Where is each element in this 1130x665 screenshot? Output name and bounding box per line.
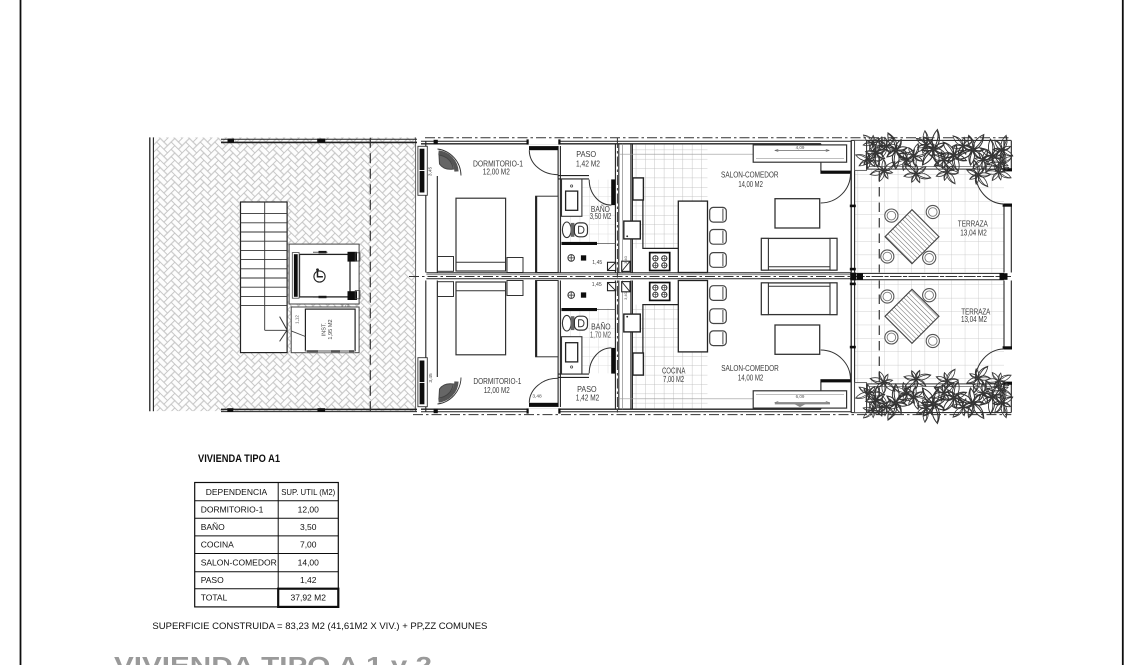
svg-text:1,70 M2: 1,70 M2 [590, 329, 611, 339]
svg-text:PASO: PASO [201, 575, 224, 585]
svg-text:3,48: 3,48 [532, 394, 542, 400]
svg-text:1,45: 1,45 [592, 282, 602, 288]
svg-text:SALON-COMEDOR: SALON-COMEDOR [201, 558, 277, 568]
svg-text:1,42: 1,42 [300, 575, 317, 585]
svg-text:TOTAL: TOTAL [201, 593, 228, 603]
svg-text:6,09: 6,09 [796, 394, 805, 399]
svg-text:14,00 M2: 14,00 M2 [738, 373, 764, 383]
svg-text:13,04 M2: 13,04 M2 [961, 314, 987, 324]
svg-text:SALON-COMEDOR: SALON-COMEDOR [721, 363, 779, 373]
svg-text:1,45: 1,45 [592, 260, 602, 266]
svg-text:VIVIENDA TIPO A 1 y 2: VIVIENDA TIPO A 1 y 2 [114, 653, 432, 665]
svg-text:7,00 M2: 7,00 M2 [663, 374, 684, 384]
svg-text:1,42 M2: 1,42 M2 [576, 159, 600, 169]
svg-text:1,42 M2: 1,42 M2 [576, 393, 600, 403]
svg-text:14,00: 14,00 [298, 558, 320, 568]
svg-text:1,12: 1,12 [295, 315, 300, 324]
svg-text:3,40: 3,40 [623, 291, 628, 300]
svg-text:12,00 M2: 12,00 M2 [484, 385, 510, 395]
svg-text:7,00: 7,00 [300, 540, 317, 550]
svg-text:DORMITORIO-1: DORMITORIO-1 [201, 504, 264, 514]
svg-text:13,04 M2: 13,04 M2 [960, 227, 987, 237]
svg-text:3,50 M2: 3,50 M2 [590, 211, 612, 221]
svg-text:12,00: 12,00 [298, 504, 320, 514]
svg-text:37,92 M2: 37,92 M2 [291, 593, 327, 603]
svg-text:12,00 M2: 12,00 M2 [483, 167, 510, 177]
svg-text:COCINA: COCINA [201, 540, 234, 550]
svg-text:3,40: 3,40 [623, 255, 628, 264]
svg-text:3,45: 3,45 [428, 167, 434, 177]
svg-text:VIVIENDA TIPO A1: VIVIENDA TIPO A1 [198, 453, 281, 465]
svg-text:SUPERFICIE CONSTRUIDA = 83,23: SUPERFICIE CONSTRUIDA = 83,23 M2 (41,61M… [152, 621, 487, 631]
svg-text:SUP. UTIL (M2): SUP. UTIL (M2) [281, 487, 335, 497]
svg-text:DEPENDENCIA: DEPENDENCIA [206, 487, 268, 497]
svg-text:14,00 M2: 14,00 M2 [738, 179, 763, 189]
svg-text:3,50: 3,50 [300, 522, 317, 532]
svg-text:4,09: 4,09 [796, 145, 805, 150]
svg-text:BAÑO: BAÑO [201, 522, 225, 532]
svg-text:3,45: 3,45 [428, 373, 434, 383]
